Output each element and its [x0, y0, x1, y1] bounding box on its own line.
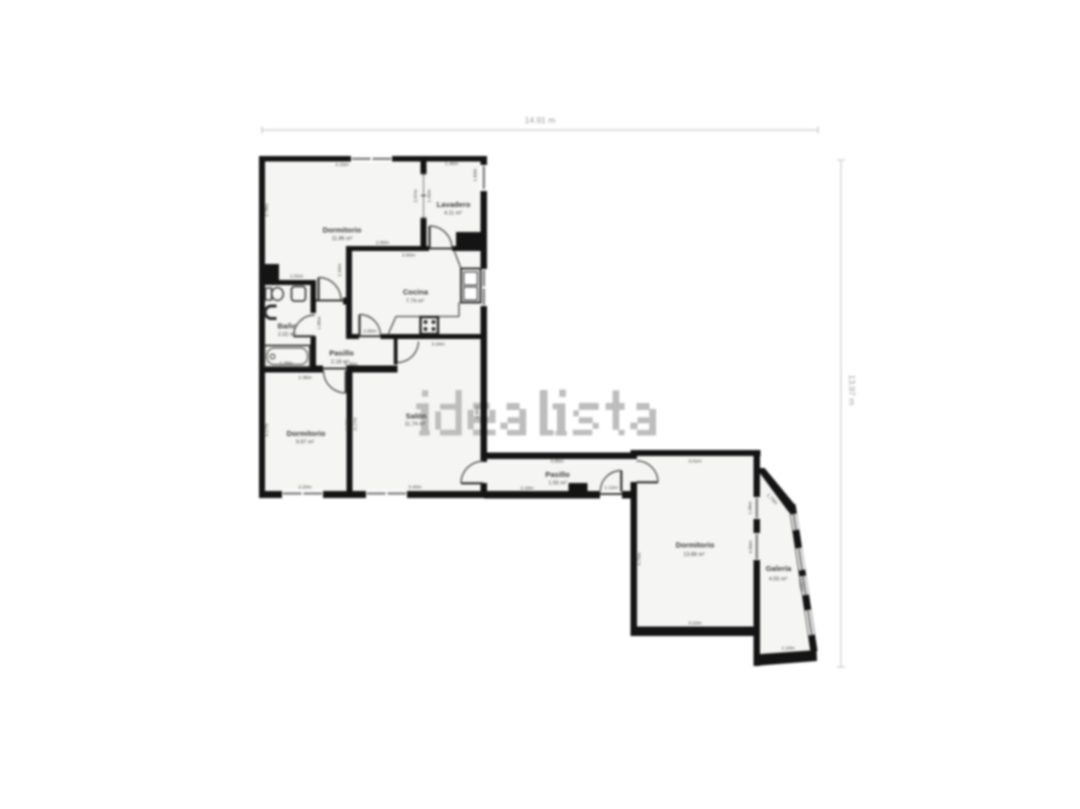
svg-text:2.90m: 2.90m: [363, 329, 376, 335]
svg-text:1.10m: 1.10m: [781, 646, 794, 652]
svg-text:Pasillo: Pasillo: [329, 349, 354, 358]
svg-text:3.22m: 3.22m: [688, 621, 701, 627]
svg-text:1.55 m²: 1.55 m²: [548, 481, 566, 487]
svg-text:3.95m: 3.95m: [475, 405, 481, 418]
svg-text:1.46m: 1.46m: [445, 161, 458, 167]
svg-text:4.17m: 4.17m: [264, 423, 270, 436]
svg-text:4.11 m²: 4.11 m²: [444, 211, 462, 217]
svg-text:Salón: Salón: [406, 412, 427, 421]
svg-text:3.26m: 3.26m: [431, 342, 444, 348]
svg-text:1.12m: 1.12m: [604, 485, 617, 491]
svg-text:1.36m: 1.36m: [344, 362, 357, 368]
svg-text:4.70m: 4.70m: [637, 552, 643, 565]
svg-text:2.07m: 2.07m: [413, 189, 419, 202]
svg-text:2.40m: 2.40m: [337, 263, 343, 276]
svg-text:1.85m: 1.85m: [317, 316, 323, 329]
svg-text:4.59m: 4.59m: [748, 540, 754, 553]
svg-text:13.97 m: 13.97 m: [847, 375, 857, 406]
svg-text:2.20m: 2.20m: [298, 485, 311, 491]
svg-text:2.78m: 2.78m: [264, 203, 270, 216]
svg-text:1.28m: 1.28m: [279, 361, 292, 367]
svg-text:Dormitorio: Dormitorio: [676, 541, 715, 550]
svg-text:2.65m: 2.65m: [376, 240, 389, 246]
svg-text:11.74 m²: 11.74 m²: [405, 422, 426, 428]
svg-text:2.02 m²: 2.02 m²: [278, 332, 296, 338]
svg-text:3.17m: 3.17m: [353, 417, 359, 430]
svg-text:Baño: Baño: [278, 322, 297, 331]
svg-text:1.06m: 1.06m: [748, 501, 754, 514]
svg-text:Pasillo: Pasillo: [545, 470, 570, 479]
svg-text:1.01m: 1.01m: [290, 274, 303, 280]
svg-text:Galería: Galería: [766, 564, 793, 573]
svg-text:13.88 m²: 13.88 m²: [683, 552, 704, 558]
svg-text:11.86 m²: 11.86 m²: [332, 236, 353, 242]
svg-text:2.35m: 2.35m: [298, 375, 311, 381]
svg-text:1.93m: 1.93m: [473, 168, 479, 181]
svg-text:9.97 m²: 9.97 m²: [296, 440, 314, 446]
svg-text:Lavadero: Lavadero: [437, 200, 471, 209]
svg-text:4.15m: 4.15m: [335, 162, 348, 168]
svg-text:Cocina: Cocina: [403, 288, 429, 297]
svg-text:3.17m: 3.17m: [345, 417, 351, 430]
svg-text:14.91 m: 14.91 m: [525, 115, 556, 125]
svg-text:Dormitorio: Dormitorio: [287, 429, 326, 438]
svg-text:1.40m: 1.40m: [427, 189, 433, 202]
svg-text:Dormitorio: Dormitorio: [323, 226, 362, 235]
svg-text:3.85m: 3.85m: [550, 459, 563, 465]
svg-text:3.01m: 3.01m: [688, 459, 701, 465]
svg-text:4.55 m²: 4.55 m²: [769, 577, 787, 583]
svg-text:3.40m: 3.40m: [408, 485, 421, 491]
svg-text:3.50m: 3.50m: [402, 253, 415, 259]
svg-text:7.74 m²: 7.74 m²: [406, 299, 424, 305]
svg-text:2.18m: 2.18m: [520, 486, 533, 492]
